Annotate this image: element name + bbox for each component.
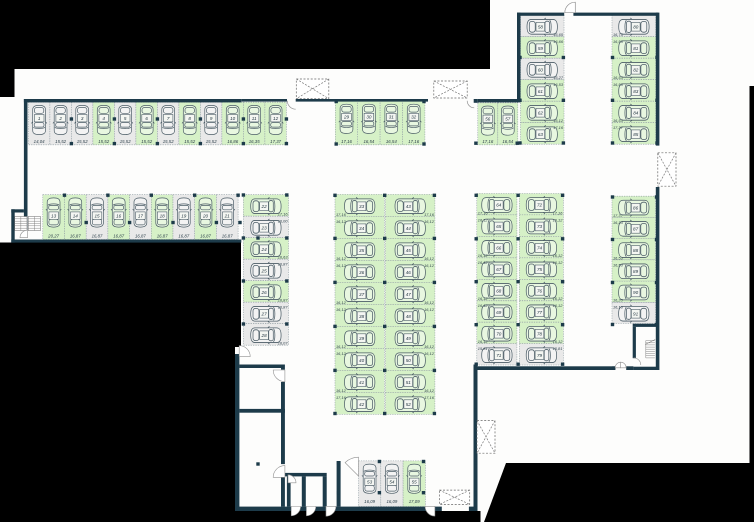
svg-text:61: 61 (538, 89, 544, 94)
svg-text:36: 36 (359, 270, 365, 275)
svg-text:52: 52 (406, 402, 412, 407)
svg-text:62: 62 (538, 111, 544, 116)
svg-text:64: 64 (496, 203, 502, 208)
svg-text:17,16: 17,16 (553, 125, 564, 130)
svg-text:71: 71 (496, 353, 502, 358)
svg-text:16,12: 16,12 (336, 351, 347, 356)
svg-text:16,12: 16,12 (553, 260, 564, 265)
svg-text:16,53: 16,53 (613, 39, 624, 44)
svg-text:50: 50 (406, 358, 412, 363)
svg-text:16,12: 16,12 (336, 300, 347, 305)
svg-text:46: 46 (406, 270, 412, 275)
svg-text:16,87: 16,87 (157, 234, 168, 239)
svg-text:21: 21 (224, 213, 231, 218)
svg-text:9: 9 (210, 116, 213, 121)
svg-text:16,87: 16,87 (222, 234, 233, 239)
svg-text:83: 83 (633, 89, 639, 94)
svg-text:16,75: 16,75 (613, 32, 624, 37)
svg-text:16,66: 16,66 (553, 39, 564, 44)
svg-text:15,52: 15,52 (184, 139, 195, 144)
svg-text:87: 87 (633, 227, 639, 232)
svg-text:16,12: 16,12 (553, 118, 564, 123)
svg-text:6: 6 (145, 116, 148, 121)
svg-text:15,81: 15,81 (478, 346, 488, 351)
svg-text:41: 41 (359, 380, 365, 385)
svg-text:16,12: 16,12 (424, 219, 435, 224)
svg-text:15,52: 15,52 (120, 139, 131, 144)
svg-text:16,16: 16,16 (613, 305, 624, 310)
svg-text:15,81: 15,81 (553, 346, 563, 351)
svg-text:70: 70 (496, 331, 502, 336)
svg-text:69: 69 (496, 310, 502, 315)
svg-text:59: 59 (538, 46, 544, 51)
svg-text:58: 58 (538, 24, 544, 29)
svg-text:28: 28 (261, 333, 268, 338)
svg-text:17,16: 17,16 (424, 212, 435, 217)
svg-text:15,52: 15,52 (77, 139, 88, 144)
svg-text:48: 48 (406, 314, 412, 319)
svg-text:85: 85 (633, 132, 639, 137)
svg-text:16,53: 16,53 (613, 82, 624, 87)
svg-text:16,12: 16,12 (553, 253, 564, 258)
svg-text:12: 12 (273, 116, 279, 121)
svg-text:74: 74 (537, 246, 543, 251)
svg-text:68: 68 (496, 289, 502, 294)
svg-text:16,12: 16,12 (553, 296, 564, 301)
svg-text:16,12: 16,12 (336, 219, 347, 224)
svg-text:77: 77 (537, 310, 543, 315)
svg-text:15: 15 (94, 213, 100, 218)
svg-text:3: 3 (81, 116, 84, 121)
svg-text:27: 27 (261, 311, 268, 316)
svg-text:16,12: 16,12 (478, 253, 489, 258)
svg-text:75: 75 (537, 267, 543, 272)
svg-text:66: 66 (496, 246, 502, 251)
svg-text:17,37: 17,37 (613, 125, 624, 130)
svg-text:16,12: 16,12 (424, 351, 435, 356)
svg-text:22: 22 (261, 204, 268, 209)
svg-text:5: 5 (124, 116, 127, 121)
svg-text:88: 88 (633, 248, 639, 253)
svg-text:16,12: 16,12 (553, 303, 564, 308)
svg-text:37: 37 (359, 292, 365, 297)
svg-text:56: 56 (485, 117, 491, 122)
svg-text:54: 54 (389, 480, 395, 485)
svg-text:16,12: 16,12 (478, 303, 489, 308)
svg-text:16,07: 16,07 (278, 341, 289, 346)
svg-text:49: 49 (406, 336, 412, 341)
svg-text:16,12: 16,12 (553, 339, 564, 344)
svg-text:16,33: 16,33 (613, 220, 624, 225)
svg-text:16,87: 16,87 (135, 234, 146, 239)
svg-text:32: 32 (411, 115, 417, 120)
svg-text:16,53: 16,53 (553, 82, 564, 87)
svg-text:17,16: 17,16 (424, 395, 435, 400)
svg-text:23: 23 (261, 225, 268, 230)
svg-text:16,12: 16,12 (424, 388, 435, 393)
svg-text:82: 82 (633, 68, 639, 73)
svg-text:15,52: 15,52 (55, 139, 66, 144)
svg-text:91: 91 (633, 311, 639, 316)
svg-text:25: 25 (261, 268, 268, 273)
svg-text:15,52: 15,52 (141, 139, 152, 144)
svg-text:2: 2 (58, 116, 62, 121)
svg-text:43: 43 (406, 204, 412, 209)
svg-text:16,12: 16,12 (424, 256, 435, 261)
svg-text:19: 19 (181, 213, 187, 218)
svg-text:16,09: 16,09 (364, 499, 375, 504)
svg-text:16,87: 16,87 (278, 305, 289, 310)
svg-text:1: 1 (38, 116, 41, 121)
svg-text:47: 47 (406, 292, 412, 297)
svg-text:16,12: 16,12 (424, 263, 435, 268)
svg-text:16,12: 16,12 (336, 307, 347, 312)
svg-text:16,87: 16,87 (200, 234, 211, 239)
svg-text:72: 72 (537, 203, 543, 208)
svg-text:16,53: 16,53 (613, 75, 624, 80)
svg-text:16,12: 16,12 (478, 260, 489, 265)
svg-text:65: 65 (496, 224, 502, 229)
svg-text:44: 44 (406, 226, 412, 231)
svg-text:15,52: 15,52 (98, 139, 109, 144)
svg-text:63: 63 (538, 132, 544, 137)
svg-text:16,12: 16,12 (478, 339, 489, 344)
svg-text:18: 18 (160, 213, 166, 218)
svg-text:16,12: 16,12 (336, 263, 347, 268)
svg-text:33: 33 (359, 204, 365, 209)
svg-text:16,53: 16,53 (613, 118, 624, 123)
svg-text:16,00: 16,00 (278, 219, 289, 224)
svg-text:16,87: 16,87 (92, 234, 103, 239)
svg-text:31: 31 (389, 115, 395, 120)
svg-text:16,87: 16,87 (178, 234, 189, 239)
svg-text:53: 53 (367, 480, 373, 485)
svg-text:16,12: 16,12 (336, 388, 347, 393)
svg-text:8: 8 (188, 116, 191, 121)
svg-text:40: 40 (359, 358, 365, 363)
svg-text:35: 35 (359, 248, 365, 253)
svg-text:16,09: 16,09 (386, 499, 397, 504)
svg-text:16: 16 (116, 213, 122, 218)
svg-text:80: 80 (633, 24, 639, 29)
svg-text:51: 51 (406, 380, 412, 385)
svg-text:17,37: 17,37 (270, 139, 281, 144)
svg-text:42: 42 (359, 402, 365, 407)
svg-text:17,16: 17,16 (478, 210, 489, 215)
svg-text:17,16: 17,16 (482, 139, 493, 144)
svg-text:16,12: 16,12 (336, 344, 347, 349)
svg-text:16,87: 16,87 (278, 262, 289, 267)
svg-text:16,12: 16,12 (424, 300, 435, 305)
svg-text:14: 14 (73, 213, 79, 218)
svg-text:38: 38 (359, 314, 365, 319)
svg-text:73: 73 (537, 224, 543, 229)
svg-text:17,37: 17,37 (613, 213, 624, 218)
svg-text:14,04: 14,04 (34, 139, 45, 144)
svg-text:76: 76 (537, 289, 543, 294)
svg-text:4: 4 (102, 116, 105, 121)
svg-text:17,16: 17,16 (336, 395, 347, 400)
svg-text:16,35: 16,35 (249, 139, 260, 144)
svg-text:84: 84 (633, 111, 639, 116)
svg-text:26: 26 (261, 290, 268, 295)
svg-text:89: 89 (633, 269, 639, 274)
svg-text:17,09: 17,09 (409, 499, 420, 504)
svg-text:10: 10 (230, 116, 236, 121)
svg-text:20,27: 20,27 (47, 234, 59, 239)
svg-text:17,16: 17,16 (278, 212, 289, 217)
svg-text:29: 29 (343, 115, 350, 120)
svg-text:16,20: 16,20 (613, 298, 624, 303)
svg-text:86: 86 (633, 205, 639, 210)
svg-text:16,87: 16,87 (278, 298, 289, 303)
svg-text:17,16: 17,16 (336, 212, 347, 217)
svg-text:16,12: 16,12 (478, 296, 489, 301)
svg-text:17,16: 17,16 (553, 210, 564, 215)
svg-text:57: 57 (505, 117, 511, 122)
svg-text:16,12: 16,12 (424, 344, 435, 349)
svg-text:17,16: 17,16 (341, 139, 352, 144)
svg-text:34: 34 (359, 226, 365, 231)
svg-text:16,12: 16,12 (424, 307, 435, 312)
svg-text:16,54: 16,54 (386, 139, 397, 144)
svg-text:16,12: 16,12 (553, 217, 564, 222)
svg-text:17: 17 (138, 213, 144, 218)
svg-text:24: 24 (261, 247, 268, 252)
svg-text:11: 11 (252, 116, 257, 121)
svg-text:16,53: 16,53 (613, 255, 624, 260)
svg-text:45: 45 (406, 248, 412, 253)
svg-text:16,87: 16,87 (70, 234, 81, 239)
svg-text:79: 79 (537, 353, 543, 358)
svg-text:7: 7 (167, 116, 170, 121)
svg-text:39: 39 (359, 336, 365, 341)
svg-text:16,27: 16,27 (553, 75, 564, 80)
svg-text:67: 67 (496, 267, 502, 272)
svg-text:30: 30 (366, 115, 372, 120)
svg-text:13: 13 (51, 213, 57, 218)
svg-text:15,52: 15,52 (206, 139, 217, 144)
svg-text:78: 78 (537, 331, 543, 336)
svg-text:55: 55 (412, 480, 418, 485)
svg-text:17,16: 17,16 (408, 139, 419, 144)
svg-text:16,12: 16,12 (336, 256, 347, 261)
svg-text:90: 90 (633, 290, 639, 295)
svg-text:16,63: 16,63 (278, 255, 289, 260)
svg-text:16,54: 16,54 (502, 139, 513, 144)
svg-text:20: 20 (202, 213, 209, 218)
svg-text:16,86: 16,86 (227, 139, 238, 144)
svg-text:16,53: 16,53 (613, 262, 624, 267)
svg-text:81: 81 (633, 46, 639, 51)
svg-text:16,54: 16,54 (363, 139, 374, 144)
svg-text:60: 60 (538, 68, 544, 73)
svg-text:15,52: 15,52 (163, 139, 174, 144)
svg-text:16,12: 16,12 (478, 217, 489, 222)
svg-text:16,65: 16,65 (553, 32, 564, 37)
svg-text:16,87: 16,87 (113, 234, 124, 239)
